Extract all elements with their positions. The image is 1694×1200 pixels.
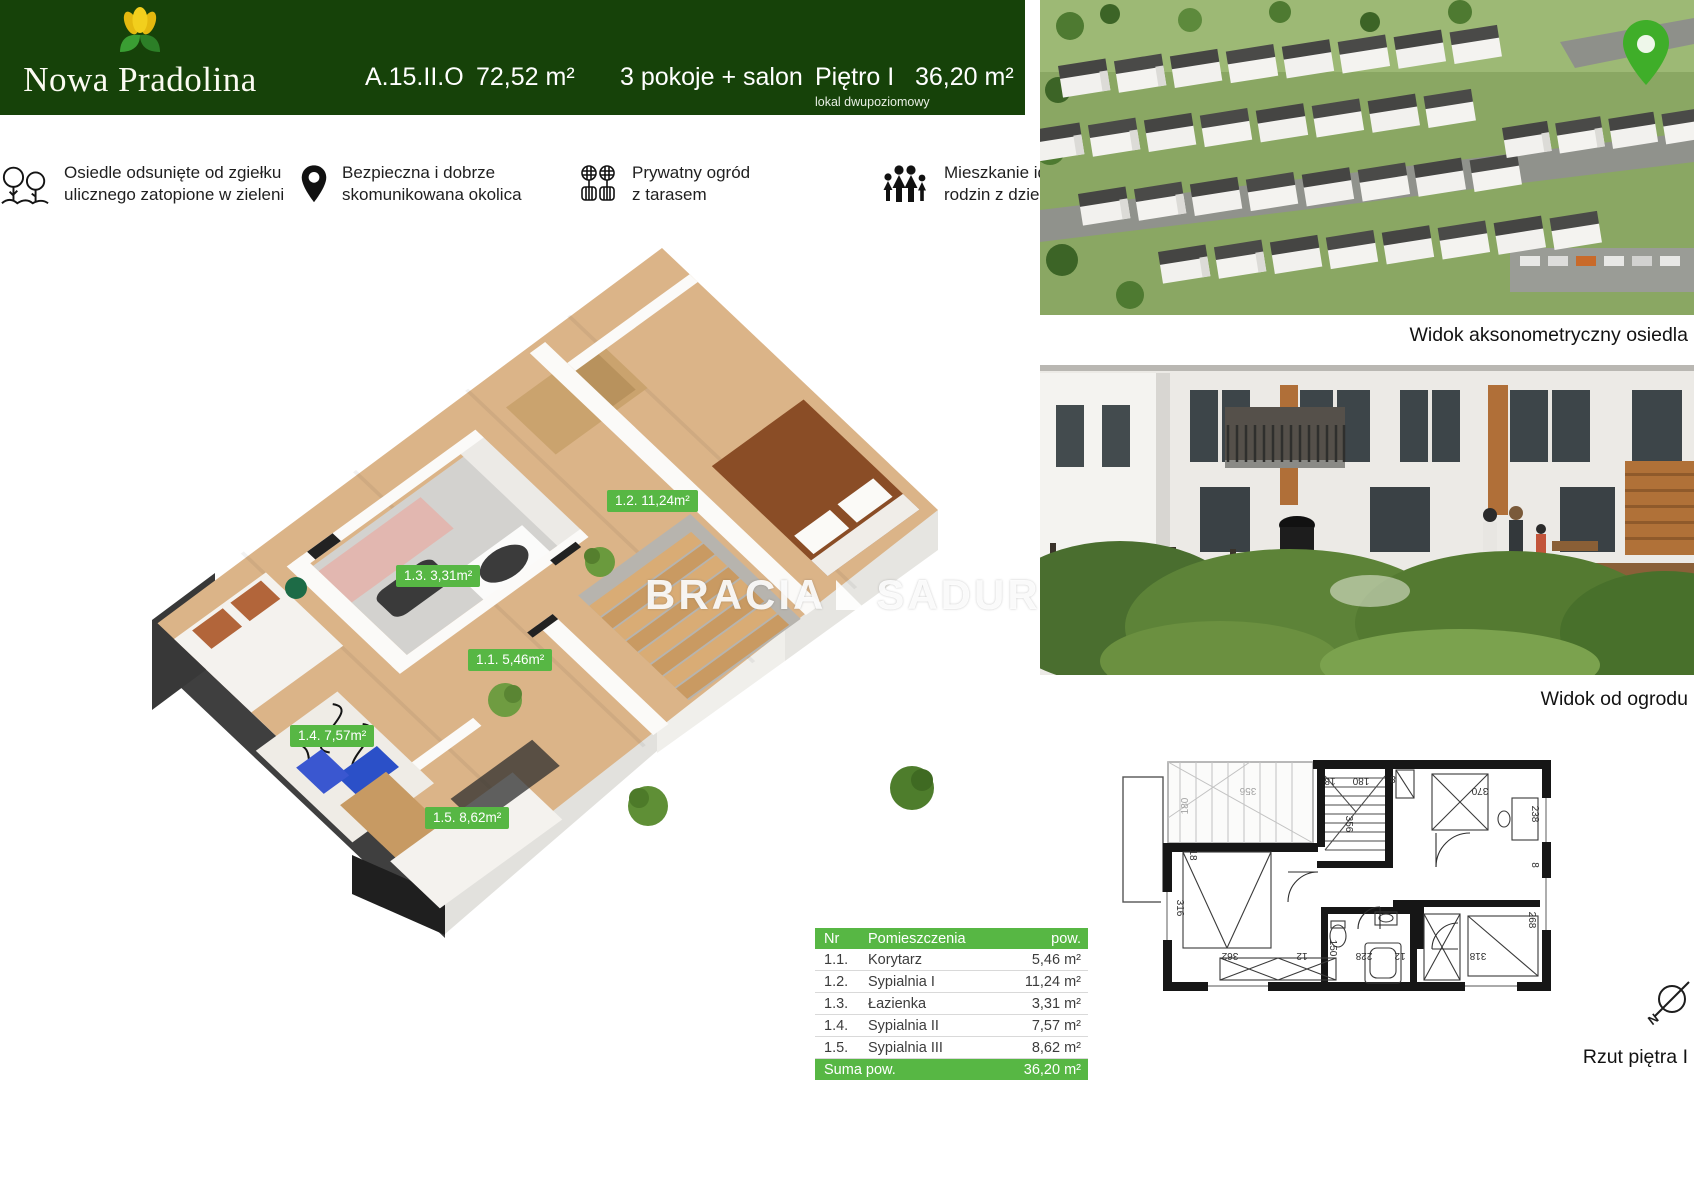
brand-name: Nowa Pradolina xyxy=(22,60,258,100)
agency-watermark: BRACIASADURS xyxy=(645,571,1040,619)
table-row: 1.1.Korytarz5,46 m² xyxy=(815,949,1088,971)
dimension-label: 8 xyxy=(1390,773,1396,784)
table-row: 1.2.Sypialnia I11,24 m² xyxy=(815,971,1088,993)
feature-text: Osiedle odsunięte od zgiełku ulicznego z… xyxy=(64,162,284,207)
feature-text: Bezpieczna i dobrze skomunikowana okolic… xyxy=(342,162,522,207)
floor-area: 36,20 m² xyxy=(915,63,1014,92)
dimension-label: 316 xyxy=(1174,900,1185,917)
table-row: 1.3.Łazienka3,31 m² xyxy=(815,993,1088,1015)
room-area-badge: 1.4. 7,57m² xyxy=(290,725,374,747)
family-icon xyxy=(880,164,930,204)
room-area-badge: 1.1. 5,46m² xyxy=(468,649,552,671)
area-table: Nr Pomieszczenia pow. 1.1.Korytarz5,46 m… xyxy=(815,928,1088,1080)
table-row: 1.4.Sypialnia II7,57 m² xyxy=(815,1015,1088,1037)
dimension-label: 8 xyxy=(1529,862,1540,868)
total-area: 72,52 m² xyxy=(476,63,575,92)
floor-label: Piętro I xyxy=(815,63,894,92)
dimension-label: 12 xyxy=(1394,950,1406,961)
room-area-badge: 1.5. 8,62m² xyxy=(425,807,509,829)
brand: Nowa Pradolina xyxy=(22,6,258,100)
brochure-page: Nowa Pradolina A.15.II.O 72,52 m² 3 poko… xyxy=(0,0,1694,1200)
dimension-label: 238 xyxy=(1529,806,1540,823)
compass-icon: N xyxy=(1645,978,1694,1035)
unit-code: A.15.II.O xyxy=(365,63,464,92)
table-total-row: Suma pow. 36,20 m² xyxy=(815,1059,1088,1081)
garden-render-photo xyxy=(1040,365,1694,675)
dimension-label: 356 xyxy=(1343,816,1354,833)
location-pin-icon xyxy=(300,164,328,204)
dimension-label: 228 xyxy=(1355,950,1372,961)
feature-item-green: Osiedle odsunięte od zgiełku ulicznego z… xyxy=(0,152,284,216)
rooms-label: 3 pokoje + salon xyxy=(620,63,803,92)
room-area-badge: 1.2. 11,24m² xyxy=(607,490,698,512)
dimension-label: 18 xyxy=(1324,775,1336,786)
dimension-label: 318 xyxy=(1469,950,1486,961)
dimension-label: 180 xyxy=(1352,775,1369,786)
floorplan-2d: 180 356 18 180 8 370 238 356 18 316 362 … xyxy=(1080,700,1600,1000)
dimension-label: 150 xyxy=(1327,940,1338,957)
floorplan-3d-render xyxy=(140,235,1040,1005)
dimension-label: 370 xyxy=(1471,785,1488,796)
feature-text: Prywatny ogród z tarasem xyxy=(632,162,750,207)
room-area-badge: 1.3. 3,31m² xyxy=(396,565,480,587)
feature-item-garden: Prywatny ogród z tarasem xyxy=(578,152,750,216)
feature-item-location: Bezpieczna i dobrze skomunikowana okolic… xyxy=(300,152,522,216)
dimension-label: 356 xyxy=(1239,785,1256,796)
floorplan-3d: 1.2. 11,24m² 1.3. 3,31m² 1.1. 5,46m² 1.4… xyxy=(140,235,1040,1005)
trees-icon xyxy=(0,161,50,207)
dimension-label: 362 xyxy=(1221,950,1238,961)
dimension-label: 12 xyxy=(1296,950,1308,961)
tulip-logo-icon xyxy=(116,6,164,58)
table-row: 1.5.Sypialnia III8,62 m² xyxy=(815,1037,1088,1059)
dimension-label: 180 xyxy=(1180,797,1191,814)
header-bar: Nowa Pradolina A.15.II.O 72,52 m² 3 poko… xyxy=(0,0,1025,115)
watermark-logo-icon xyxy=(836,580,866,610)
floor-note: lokal dwupoziomowy xyxy=(815,95,930,109)
dimension-label: 268 xyxy=(1526,912,1537,929)
garden-flowers-icon xyxy=(578,163,618,205)
table-header-row: Nr Pomieszczenia pow. xyxy=(815,928,1088,949)
plan-caption: Rzut piętra I xyxy=(1300,1046,1688,1069)
aerial-caption: Widok aksonometryczny osiedla xyxy=(1040,324,1688,347)
aerial-render-photo xyxy=(1040,0,1694,315)
dimension-label: 18 xyxy=(1187,849,1198,861)
